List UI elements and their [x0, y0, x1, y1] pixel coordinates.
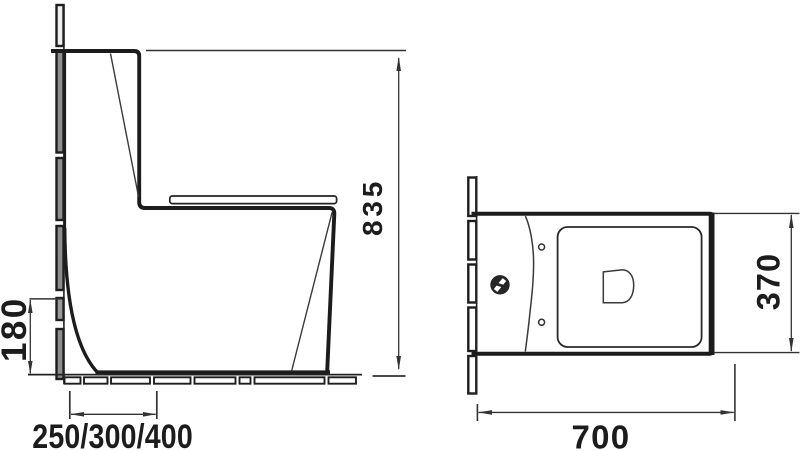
svg-text:250/300/400: 250/300/400 — [32, 418, 192, 451]
svg-text:180: 180 — [0, 296, 34, 362]
svg-text:700: 700 — [572, 418, 631, 451]
svg-text:370: 370 — [751, 253, 787, 310]
svg-text:835: 835 — [357, 178, 388, 236]
